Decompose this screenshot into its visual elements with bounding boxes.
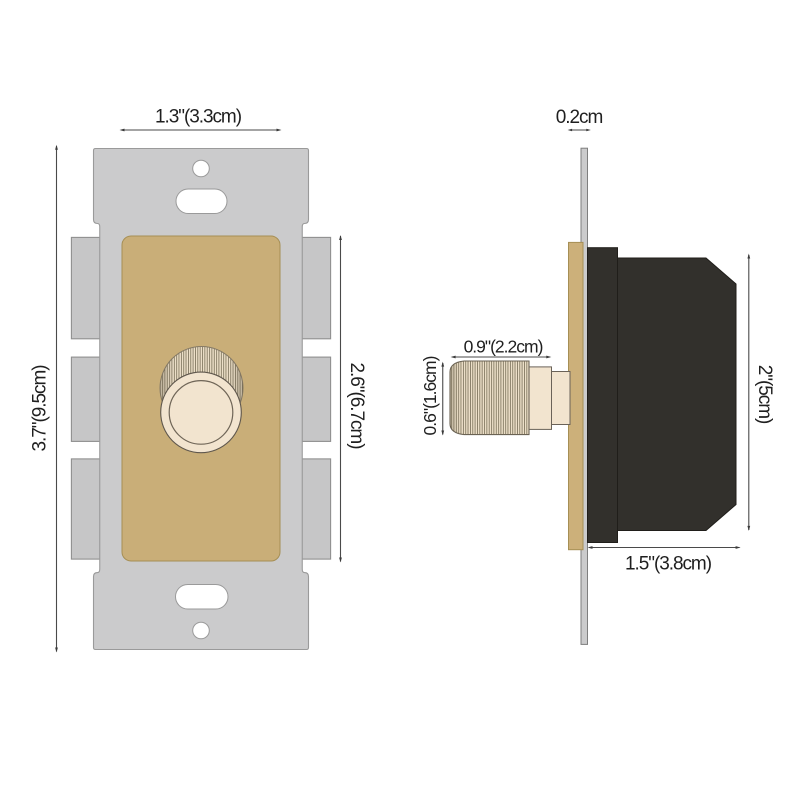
svg-text:0.2cm: 0.2cm xyxy=(556,107,603,128)
svg-text:2"(5cm): 2"(5cm) xyxy=(754,365,775,424)
svg-text:0.9"(2.2cm): 0.9"(2.2cm) xyxy=(464,337,543,357)
svg-text:3.7"(9.5cm): 3.7"(9.5cm) xyxy=(29,365,50,452)
svg-text:1.5"(3.8cm): 1.5"(3.8cm) xyxy=(625,554,712,575)
svg-text:0.6"(1.6cm): 0.6"(1.6cm) xyxy=(420,356,440,435)
svg-text:1.3"(3.3cm): 1.3"(3.3cm) xyxy=(155,107,242,128)
svg-text:2.6"(6.7cm): 2.6"(6.7cm) xyxy=(346,362,367,449)
